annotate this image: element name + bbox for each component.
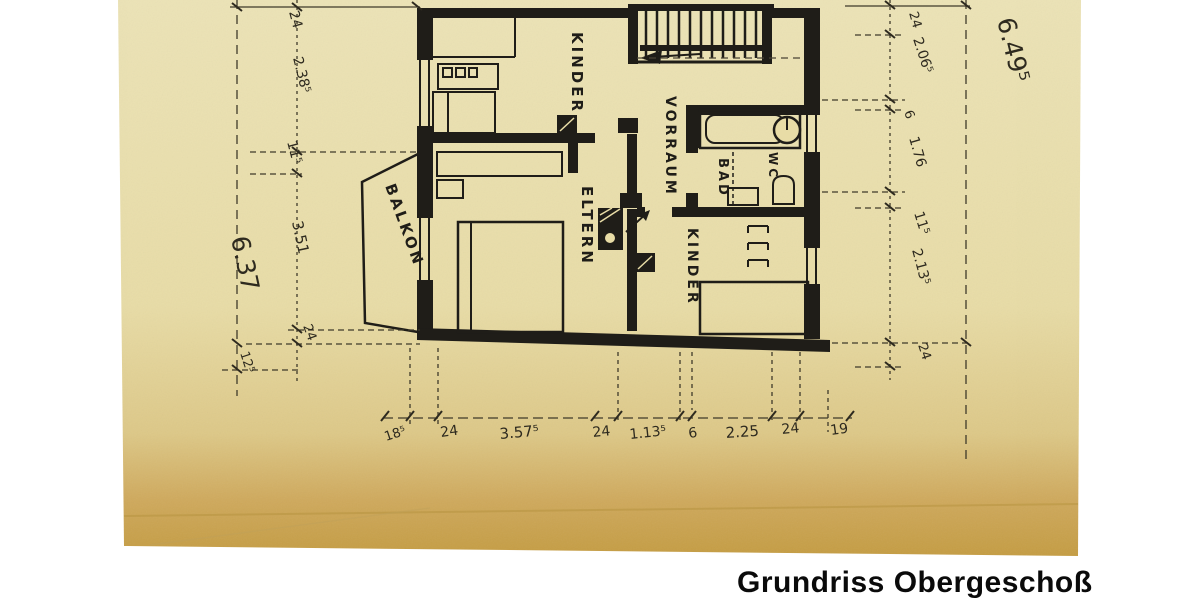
dim-bottom-6: 2.25 [725,422,760,442]
dim-bottom-2: 3.57⁵ [499,422,540,443]
dim-bottom-7: 24 [781,420,800,438]
room-label-wc: WC [766,152,780,180]
room-label-vorraum: VORRAUM [662,96,678,197]
dim-bottom-8: 19 [829,421,849,439]
room-label-kinder-bottom: KINDER [684,228,700,306]
dim-bottom-1: 24 [439,423,459,441]
dim-bottom-3: 24 [592,423,611,441]
room-label-bad: BAD [715,158,730,198]
room-label-kinder-top: KINDER [568,32,586,114]
duct [690,112,701,148]
room-label-eltern: ELTERN [578,186,596,266]
floorplan-drawing: KINDER ELTERN VORRAUM BAD WC KINDER BALK… [0,0,1200,600]
drawing-caption: Grundriss Obergeschoß [737,566,1197,600]
scanned-floorplan-page: KINDER ELTERN VORRAUM BAD WC KINDER BALK… [0,0,1200,600]
